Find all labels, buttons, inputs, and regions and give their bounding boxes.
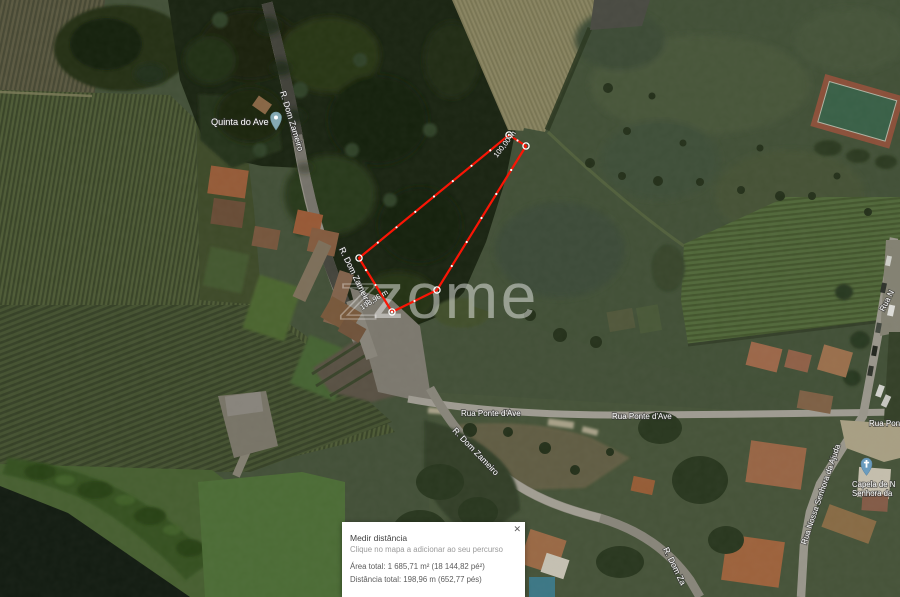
svg-text:Rua Ponte d'Ave: Rua Ponte d'Ave — [612, 412, 672, 421]
svg-text:Quinta do Ave: Quinta do Ave — [211, 117, 269, 127]
svg-text:Rua Pon: Rua Pon — [869, 419, 900, 428]
svg-text:zome: zome — [372, 260, 539, 332]
svg-text:Senhora da: Senhora da — [852, 489, 893, 498]
svg-text:Rua Ponte d'Ave: Rua Ponte d'Ave — [461, 409, 521, 418]
svg-text:Capela de N: Capela de N — [852, 480, 895, 489]
